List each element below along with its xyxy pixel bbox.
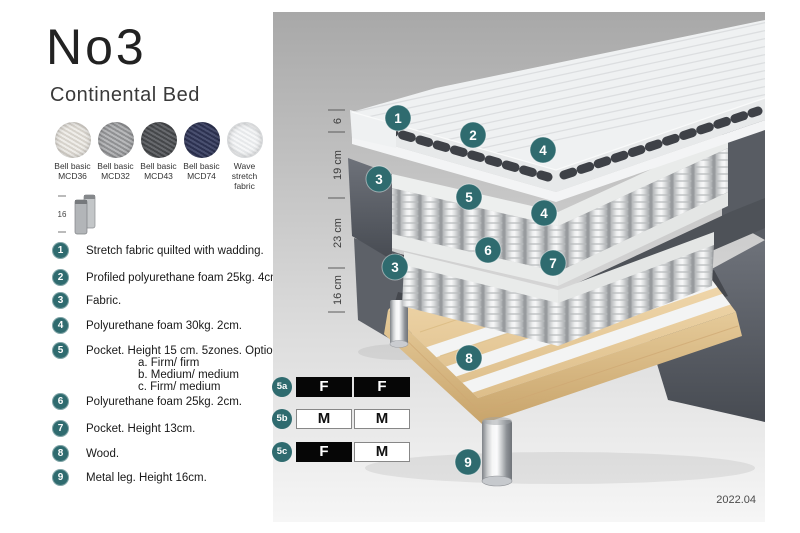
legend-number-badge: 2: [52, 269, 69, 286]
svg-text:2: 2: [469, 128, 477, 143]
firmness-cell: M: [296, 409, 352, 429]
legend-number-badge: 1: [52, 242, 69, 259]
fabric-swatch-label: Wave stretch fabric: [223, 161, 266, 191]
firmness-cell: F: [296, 442, 352, 462]
fabric-swatch-label: Bell basic MCD36: [51, 161, 94, 181]
legend-item: 3 Fabric.: [52, 292, 121, 309]
fabric-swatch-circle: [98, 122, 134, 158]
svg-text:16: 16: [58, 210, 67, 219]
svg-text:6: 6: [484, 243, 492, 258]
product-subtitle: Continental Bed: [50, 84, 200, 107]
legend-number-badge: 8: [52, 445, 69, 462]
legend-item: 7 Pocket. Height 13cm.: [52, 420, 195, 437]
svg-text:3: 3: [375, 172, 383, 187]
svg-text:7: 7: [549, 256, 557, 271]
svg-text:3: 3: [391, 260, 399, 275]
callout-marker: 3: [366, 166, 392, 192]
leg-height-icon: 16: [54, 192, 106, 238]
legend-item: 9 Metal leg. Height 16cm.: [52, 469, 207, 486]
fabric-swatch-circle: [227, 122, 263, 158]
svg-text:4: 4: [539, 143, 547, 158]
firmness-row: 5a F F: [272, 377, 410, 397]
callout-marker: 3: [382, 254, 408, 280]
firmness-cell: F: [354, 377, 410, 397]
fabric-swatch: Bell basic MCD43: [137, 122, 180, 191]
fabric-swatch: Bell basic MCD32: [94, 122, 137, 191]
firmness-bar: F M: [296, 442, 410, 462]
legend-number-badge: 6: [52, 393, 69, 410]
dimension-label: 19 cm: [332, 150, 344, 180]
callout-marker: 5: [456, 184, 482, 210]
callout-marker: 8: [456, 345, 482, 371]
callout-marker: 2: [460, 122, 486, 148]
callout-marker: 7: [540, 250, 566, 276]
svg-text:9: 9: [464, 455, 472, 470]
legend-number-badge: 4: [52, 317, 69, 334]
svg-text:1: 1: [394, 111, 402, 126]
legend-number-badge: 7: [52, 420, 69, 437]
legend-item: 2 Profiled polyurethane foam 25kg. 4cm.: [52, 269, 283, 286]
legend-item: 1 Stretch fabric quilted with wadding.: [52, 242, 264, 259]
callout-marker: 9: [455, 449, 481, 475]
fabric-swatch-circle: [141, 122, 177, 158]
fabric-swatch-label: Bell basic MCD74: [180, 161, 223, 181]
legend-number-badge: 3: [52, 292, 69, 309]
legend-item-options: a. Firm/ firm b. Medium/ medium c. Firm/…: [138, 358, 239, 393]
fabric-swatch-circle: [184, 122, 220, 158]
fabric-swatch-label: Bell basic MCD32: [94, 161, 137, 181]
fabric-swatch: Bell basic MCD74: [180, 122, 223, 191]
firmness-cell: M: [354, 442, 410, 462]
callout-marker: 1: [385, 105, 411, 131]
legend-item: 8 Wood.: [52, 445, 119, 462]
fabric-swatch-label: Bell basic MCD43: [137, 161, 180, 181]
product-sheet: No3 Continental Bed Bell basic MCD36 Bel…: [0, 0, 800, 533]
svg-text:5: 5: [465, 190, 473, 205]
firmness-bar: F F: [296, 377, 410, 397]
product-title: No3: [46, 18, 147, 76]
fabric-swatch-circle: [55, 122, 91, 158]
legend-number-badge: 5: [52, 342, 69, 359]
firmness-row: 5c F M: [272, 442, 410, 462]
dimension-label: 23 cm: [332, 218, 344, 248]
firmness-row-badge: 5c: [272, 442, 292, 462]
callout-marker: 4: [531, 200, 557, 226]
revision-date: 2022.04: [676, 494, 756, 506]
svg-text:4: 4: [540, 206, 548, 221]
fabric-swatch-row: Bell basic MCD36 Bell basic MCD32 Bell b…: [51, 122, 271, 191]
firmness-bar: M M: [296, 409, 410, 429]
metal-leg-rear: [390, 300, 408, 348]
firmness-cell: M: [354, 409, 410, 429]
legend-item: 6 Polyurethane foam 25kg. 2cm.: [52, 393, 242, 410]
metal-leg-front: [482, 417, 512, 486]
legend-number-badge: 9: [52, 469, 69, 486]
firmness-row: 5b M M: [272, 409, 410, 429]
dimension-label: 16 cm: [332, 275, 344, 305]
fabric-swatch: Bell basic MCD36: [51, 122, 94, 191]
firmness-row-badge: 5a: [272, 377, 292, 397]
fabric-swatch: Wave stretch fabric: [223, 122, 266, 191]
svg-text:8: 8: [465, 351, 473, 366]
firmness-row-badge: 5b: [272, 409, 292, 429]
callout-marker: 6: [475, 237, 501, 263]
callout-marker: 4: [530, 137, 556, 163]
dimension-label: 6: [332, 118, 344, 124]
firmness-cell: F: [296, 377, 352, 397]
legend-item: 4 Polyurethane foam 30kg. 2cm.: [52, 317, 242, 334]
